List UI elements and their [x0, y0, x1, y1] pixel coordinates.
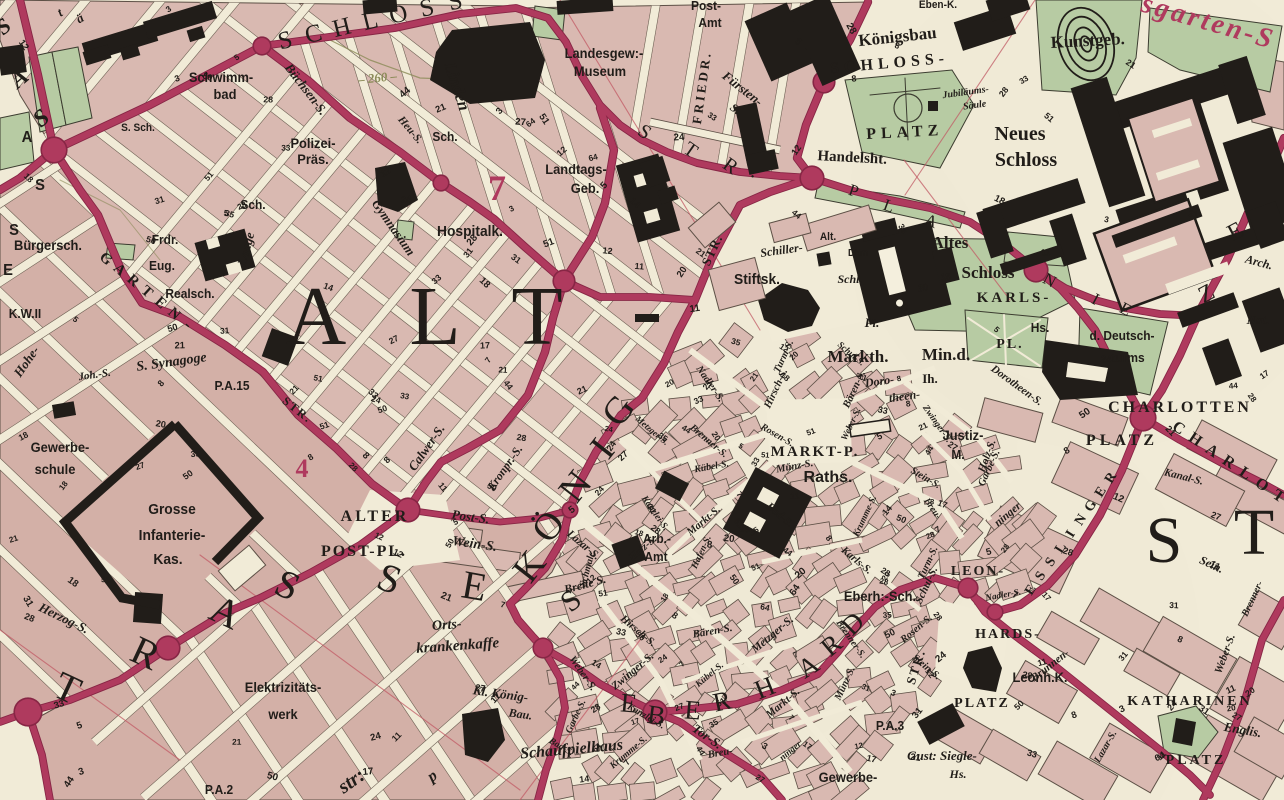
svg-text:PLATZ: PLATZ [1086, 432, 1158, 449]
svg-text:Hs.: Hs. [948, 767, 966, 781]
svg-text:ALTER: ALTER [341, 508, 410, 525]
svg-text:21: 21 [232, 737, 242, 747]
svg-text:A: A [286, 270, 347, 363]
svg-text:HARDS-: HARDS- [975, 627, 1041, 642]
svg-text:11: 11 [634, 261, 644, 272]
svg-text:20: 20 [917, 282, 929, 294]
svg-text:LEON-: LEON- [951, 564, 1005, 579]
svg-text:14: 14 [579, 773, 590, 784]
svg-text:17: 17 [362, 766, 374, 778]
svg-text:Kas.: Kas. [153, 552, 182, 569]
svg-text:A: A [22, 128, 33, 146]
svg-text:Kunstgeb.: Kunstgeb. [1050, 29, 1125, 52]
svg-text:Amt: Amt [698, 16, 721, 31]
svg-text:CHARLOTTEN: CHARLOTTEN [1108, 399, 1252, 416]
svg-text:Schloss: Schloss [995, 149, 1057, 171]
svg-text:27: 27 [475, 682, 487, 693]
svg-text:Hs.: Hs. [1031, 321, 1050, 336]
svg-text:PL.: PL. [996, 337, 1023, 352]
svg-text:KARLS-: KARLS- [977, 290, 1052, 306]
svg-text:Schwimm-: Schwimm- [189, 70, 253, 86]
svg-text:11: 11 [689, 303, 701, 315]
svg-text:31: 31 [1169, 600, 1179, 610]
svg-text:Stiftsk.: Stiftsk. [734, 272, 780, 289]
svg-text:44: 44 [1229, 381, 1239, 391]
svg-text:Polizei-: Polizei- [290, 136, 335, 152]
svg-text:11: 11 [1041, 247, 1051, 258]
svg-text:Eben-K.: Eben-K. [919, 0, 957, 11]
svg-text:7: 7 [488, 168, 506, 208]
svg-text:Dkm: Dkm [848, 248, 868, 259]
svg-text:P.A.3: P.A.3 [876, 719, 904, 734]
svg-text:Eug.: Eug. [149, 259, 175, 274]
svg-text:P.A.15: P.A.15 [214, 379, 249, 394]
svg-text:S: S [35, 176, 45, 194]
svg-text:Bürgersch.: Bürgersch. [14, 238, 82, 254]
svg-text:17: 17 [480, 340, 490, 350]
svg-text:28: 28 [263, 94, 273, 104]
svg-text:Pl.: Pl. [865, 315, 880, 330]
svg-text:35: 35 [190, 448, 201, 459]
svg-text:Museum: Museum [574, 64, 626, 80]
svg-text:d. Deutsch-: d. Deutsch- [1089, 329, 1154, 344]
svg-text:Schl.: Schl. [837, 272, 862, 286]
svg-text:S: S [9, 221, 19, 239]
svg-text:51: 51 [101, 575, 111, 585]
svg-text:werk: werk [267, 707, 298, 723]
svg-text:S: S [1146, 504, 1183, 577]
svg-text:Altes: Altes [932, 233, 969, 252]
svg-text:20: 20 [723, 533, 736, 545]
svg-text:Elektrizitäts-: Elektrizitäts- [245, 680, 322, 696]
svg-text:Gewerbe-: Gewerbe- [819, 770, 878, 786]
svg-text:Eberh:-Sch.: Eberh:-Sch. [844, 589, 916, 605]
svg-text:S. Sch.: S. Sch. [121, 122, 155, 134]
svg-text:21: 21 [910, 751, 922, 763]
svg-text:Neues: Neues [994, 123, 1045, 145]
svg-text:PLATZ: PLATZ [954, 696, 1010, 711]
svg-text:Landtags-: Landtags- [545, 162, 606, 178]
svg-text:Grosse: Grosse [148, 502, 196, 519]
svg-text:4: 4 [296, 454, 309, 483]
svg-text:12: 12 [602, 245, 613, 256]
svg-text:Geb.: Geb. [571, 181, 600, 197]
svg-text:51: 51 [761, 450, 770, 459]
svg-text:24: 24 [673, 132, 685, 144]
svg-text:Schloss: Schloss [962, 263, 1015, 282]
svg-text:PLATZ: PLATZ [1166, 753, 1227, 768]
svg-text:Infanterie-: Infanterie- [139, 528, 206, 545]
svg-text:21: 21 [498, 365, 508, 375]
svg-text:P.A.2: P.A.2 [205, 783, 233, 798]
svg-text:8: 8 [851, 73, 857, 83]
svg-text:24: 24 [1100, 354, 1112, 365]
svg-text:18: 18 [940, 271, 951, 282]
svg-text:Raths.: Raths. [804, 469, 853, 486]
svg-text:Post-: Post- [691, 0, 721, 13]
svg-text:Min.d.: Min.d. [922, 345, 970, 364]
svg-text:31: 31 [220, 325, 230, 336]
svg-text:24: 24 [400, 193, 412, 205]
svg-text:T: T [1234, 496, 1274, 569]
svg-text:35: 35 [883, 610, 893, 619]
svg-text:turms: turms [1111, 351, 1144, 366]
svg-text:Alt.: Alt. [820, 231, 836, 243]
svg-text:28: 28 [516, 432, 527, 443]
svg-text:12: 12 [854, 741, 864, 751]
svg-text:Realsch.: Realsch. [165, 287, 214, 302]
svg-text:MARKT-P.: MARKT-P. [771, 444, 860, 460]
svg-text:11: 11 [790, 491, 800, 501]
svg-text:bad: bad [214, 87, 237, 103]
svg-text:Nat.: Nat. [1246, 312, 1270, 327]
svg-text:T: T [511, 270, 562, 363]
svg-text:Landesgew:-: Landesgew:- [565, 46, 644, 62]
svg-text:33: 33 [877, 404, 889, 416]
svg-text:Sch.: Sch. [432, 130, 457, 145]
svg-text:21: 21 [174, 340, 185, 350]
svg-text:Präs.: Präs. [297, 152, 328, 168]
svg-text:Orts-: Orts- [431, 617, 462, 634]
svg-text:28: 28 [1021, 669, 1033, 681]
svg-text:33: 33 [615, 626, 627, 638]
svg-text:20: 20 [155, 418, 167, 430]
svg-text:51: 51 [598, 587, 609, 598]
svg-text:schule: schule [35, 462, 76, 478]
svg-text:33: 33 [281, 144, 291, 153]
svg-text:Gewerbe-: Gewerbe- [31, 440, 90, 456]
svg-text:Ih.: Ih. [922, 371, 938, 386]
svg-text:K.W.II: K.W.II [9, 307, 42, 322]
svg-text:E: E [3, 261, 13, 279]
